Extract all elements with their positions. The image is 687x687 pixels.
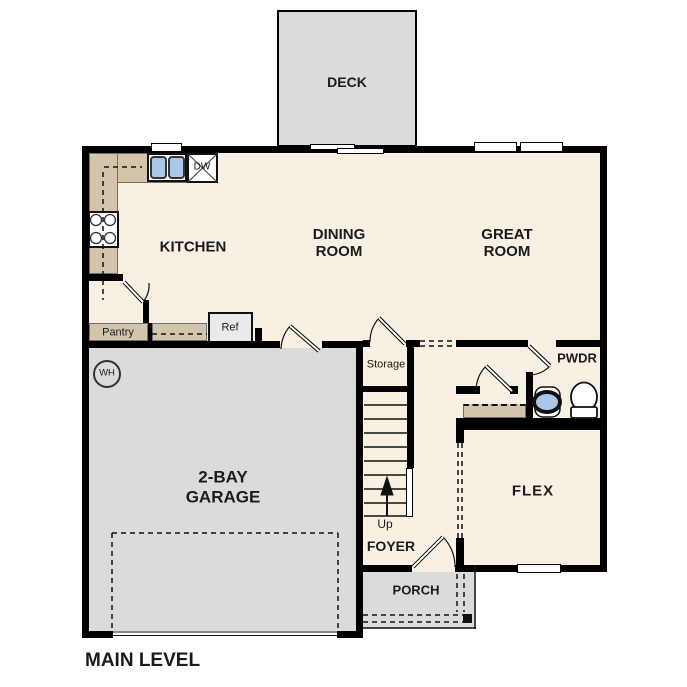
wall: [456, 538, 464, 572]
room-label-dining: DINING ROOM: [313, 226, 366, 261]
room-label-garage: 2-BAY GARAGE: [186, 467, 261, 506]
room-label-dining-line1: DINING: [313, 226, 366, 243]
label-pantry: Pantry: [102, 327, 134, 340]
wall: [82, 631, 113, 638]
flex-window: [517, 564, 561, 573]
room-label-deck: DECK: [327, 74, 367, 90]
wall: [456, 340, 528, 347]
deck-sliding-door-panel: [337, 148, 384, 154]
wall: [407, 340, 414, 468]
room-label-garage-line2: GARAGE: [186, 487, 261, 507]
wall: [456, 418, 464, 443]
label-storage: Storage: [367, 359, 406, 372]
wall: [556, 340, 607, 347]
wall: [526, 372, 533, 418]
room-label-foyer: FOYER: [367, 538, 415, 554]
wall: [363, 340, 370, 347]
room-label-great: GREAT ROOM: [481, 226, 532, 261]
room-label-porch: PORCH: [393, 584, 440, 599]
wall: [148, 323, 152, 341]
page-title: MAIN LEVEL: [85, 650, 200, 672]
great-room-window-right: [520, 142, 563, 152]
great-room-window-left: [474, 142, 517, 152]
floor-plan: DECK KITCHEN DINING ROOM GREAT ROOM PWDR…: [0, 0, 687, 687]
label-ref: Ref: [221, 322, 238, 335]
wall: [600, 146, 607, 572]
wall: [363, 386, 407, 392]
wall: [89, 274, 123, 281]
label-wh: WH: [99, 369, 115, 380]
wall: [356, 341, 363, 638]
room-label-flex: FLEX: [512, 482, 554, 499]
room-label-great-line2: ROOM: [481, 243, 532, 260]
wall: [82, 146, 89, 638]
room-label-garage-line1: 2-BAY: [186, 467, 261, 487]
label-up: Up: [377, 518, 392, 532]
wall: [456, 386, 480, 394]
wall: [255, 328, 262, 348]
room-label-great-line1: GREAT: [481, 226, 532, 243]
kitchen-sink: [147, 153, 187, 182]
wall: [456, 418, 607, 430]
room-porch: [363, 572, 475, 629]
garage-door-line: [113, 632, 337, 636]
room-label-dining-line2: ROOM: [313, 243, 366, 260]
room-label-pwdr: PWDR: [557, 352, 597, 367]
wall: [143, 300, 149, 323]
kitchen-window: [151, 143, 182, 152]
range-cooktop: [88, 211, 119, 248]
wall: [356, 565, 412, 572]
label-dw: DW: [194, 161, 211, 173]
closet-shelf: [463, 404, 526, 418]
room-label-kitchen: KITCHEN: [160, 238, 227, 255]
stair-railing: [406, 468, 413, 517]
kitchen-counter-bottom: [152, 323, 207, 341]
wall: [82, 341, 280, 348]
wall: [510, 386, 518, 394]
wall: [337, 631, 363, 638]
